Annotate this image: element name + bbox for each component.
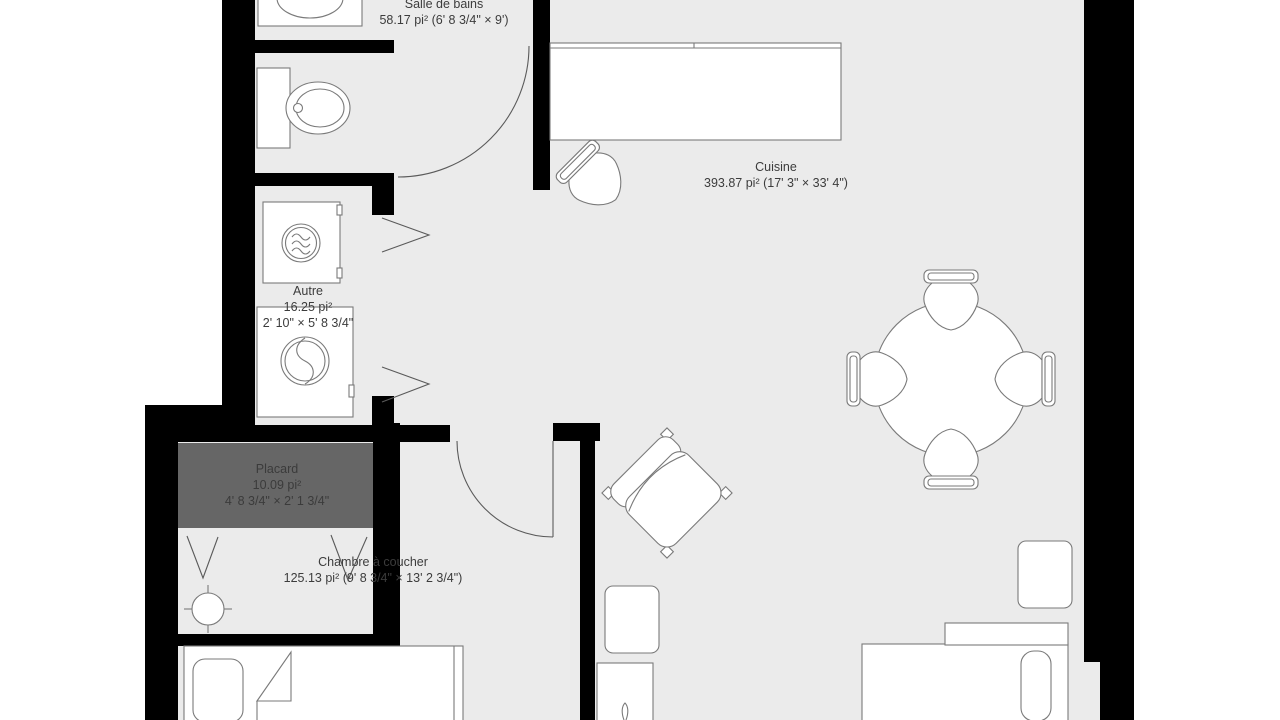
outside-area bbox=[1134, 0, 1280, 720]
room-area: 16.25 pi² bbox=[263, 299, 353, 315]
room-name: Placard bbox=[225, 461, 329, 477]
room-label-bedroom[interactable]: Chambre à coucher 125.13 pi² (9' 8 3/4" … bbox=[284, 554, 463, 586]
bathroom-sink[interactable] bbox=[258, 0, 362, 26]
room-area: 10.09 pi² bbox=[225, 477, 329, 493]
room-label-other[interactable]: Autre 16.25 pi² 2' 10" × 5' 8 3/4" bbox=[263, 283, 353, 331]
room-name: Salle de bains bbox=[379, 0, 508, 12]
room-dimensions: 2' 10" × 5' 8 3/4" bbox=[263, 315, 353, 331]
desk-center[interactable] bbox=[597, 663, 653, 720]
outside-area bbox=[0, 0, 222, 407]
outside-area bbox=[0, 407, 145, 720]
room-label-bathroom[interactable]: Salle de bains 58.17 pi² (6' 8 3/4" × 9'… bbox=[379, 0, 508, 28]
room-details: 58.17 pi² (6' 8 3/4" × 9') bbox=[379, 12, 508, 28]
room-details: 125.13 pi² (9' 8 3/4" × 13' 2 3/4") bbox=[284, 570, 463, 586]
bed-left[interactable] bbox=[184, 646, 463, 720]
room-label-kitchen[interactable]: Cuisine 393.87 pi² (17' 3" × 33' 4") bbox=[704, 159, 848, 191]
nightstand-right[interactable] bbox=[1018, 541, 1072, 608]
nightstand-center[interactable] bbox=[605, 586, 659, 653]
room-name: Chambre à coucher bbox=[284, 554, 463, 570]
floor-plan: Salle de bains 58.17 pi² (6' 8 3/4" × 9'… bbox=[0, 0, 1280, 720]
room-details: 393.87 pi² (17' 3" × 33' 4") bbox=[704, 175, 848, 191]
kitchen-counter[interactable] bbox=[550, 43, 841, 140]
room-dimensions: 4' 8 3/4" × 2' 1 3/4" bbox=[225, 493, 329, 509]
room-name: Cuisine bbox=[704, 159, 848, 175]
dryer[interactable] bbox=[263, 202, 342, 283]
room-name: Autre bbox=[263, 283, 353, 299]
room-label-closet[interactable]: Placard 10.09 pi² 4' 8 3/4" × 2' 1 3/4" bbox=[225, 461, 329, 509]
floor-plan-canvas bbox=[0, 0, 1280, 720]
